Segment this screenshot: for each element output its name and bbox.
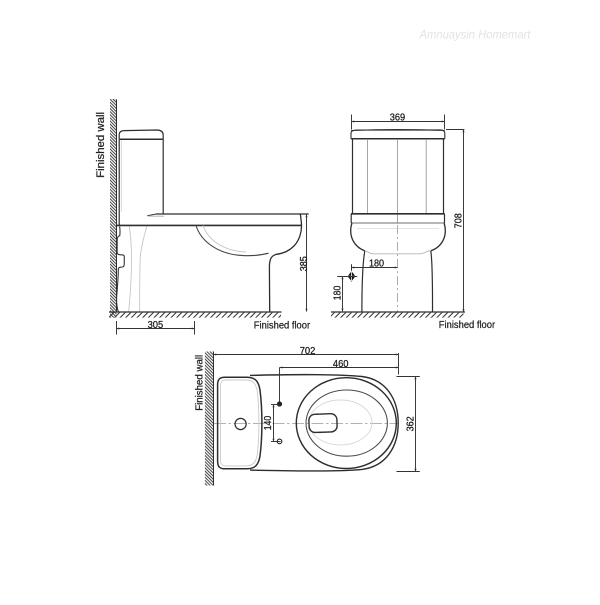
svg-text:180: 180: [369, 258, 384, 269]
svg-text:369: 369: [390, 112, 406, 123]
svg-text:140: 140: [263, 416, 274, 431]
svg-text:385: 385: [299, 256, 310, 271]
svg-text:708: 708: [453, 213, 464, 228]
svg-text:Finished floor: Finished floor: [439, 320, 496, 331]
svg-text:Finished wall: Finished wall: [194, 355, 205, 411]
svg-text:362: 362: [405, 416, 416, 431]
svg-text:Finished floor: Finished floor: [254, 321, 311, 332]
svg-text:Finished wall: Finished wall: [95, 112, 107, 178]
svg-text:180: 180: [332, 285, 343, 300]
svg-text:305: 305: [148, 320, 164, 331]
svg-text:460: 460: [333, 359, 349, 370]
svg-text:Amnuaysin Homemart: Amnuaysin Homemart: [419, 27, 531, 41]
svg-text:702: 702: [300, 346, 316, 357]
